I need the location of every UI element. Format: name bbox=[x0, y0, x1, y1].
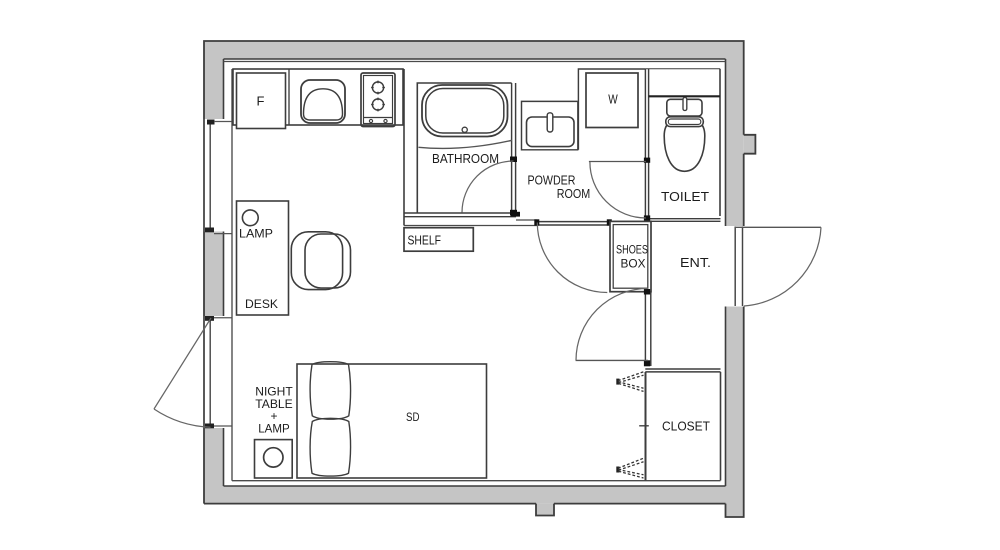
svg-text:SHELF: SHELF bbox=[408, 234, 442, 248]
svg-text:SHOES: SHOES bbox=[616, 245, 648, 257]
svg-text:LAMP: LAMP bbox=[239, 227, 273, 241]
svg-text:ENT.: ENT. bbox=[680, 255, 711, 270]
svg-text:SD: SD bbox=[406, 410, 420, 424]
svg-text:F: F bbox=[257, 94, 265, 109]
svg-text:TOILET: TOILET bbox=[661, 189, 709, 204]
svg-text:BATHROOM: BATHROOM bbox=[432, 151, 499, 166]
svg-text:ROOM: ROOM bbox=[557, 186, 591, 201]
svg-text:BOX: BOX bbox=[621, 259, 646, 271]
svg-text:W: W bbox=[608, 93, 618, 107]
svg-text:LAMP: LAMP bbox=[258, 421, 290, 435]
svg-text:CLOSET: CLOSET bbox=[662, 419, 710, 434]
svg-text:DESK: DESK bbox=[245, 297, 278, 311]
